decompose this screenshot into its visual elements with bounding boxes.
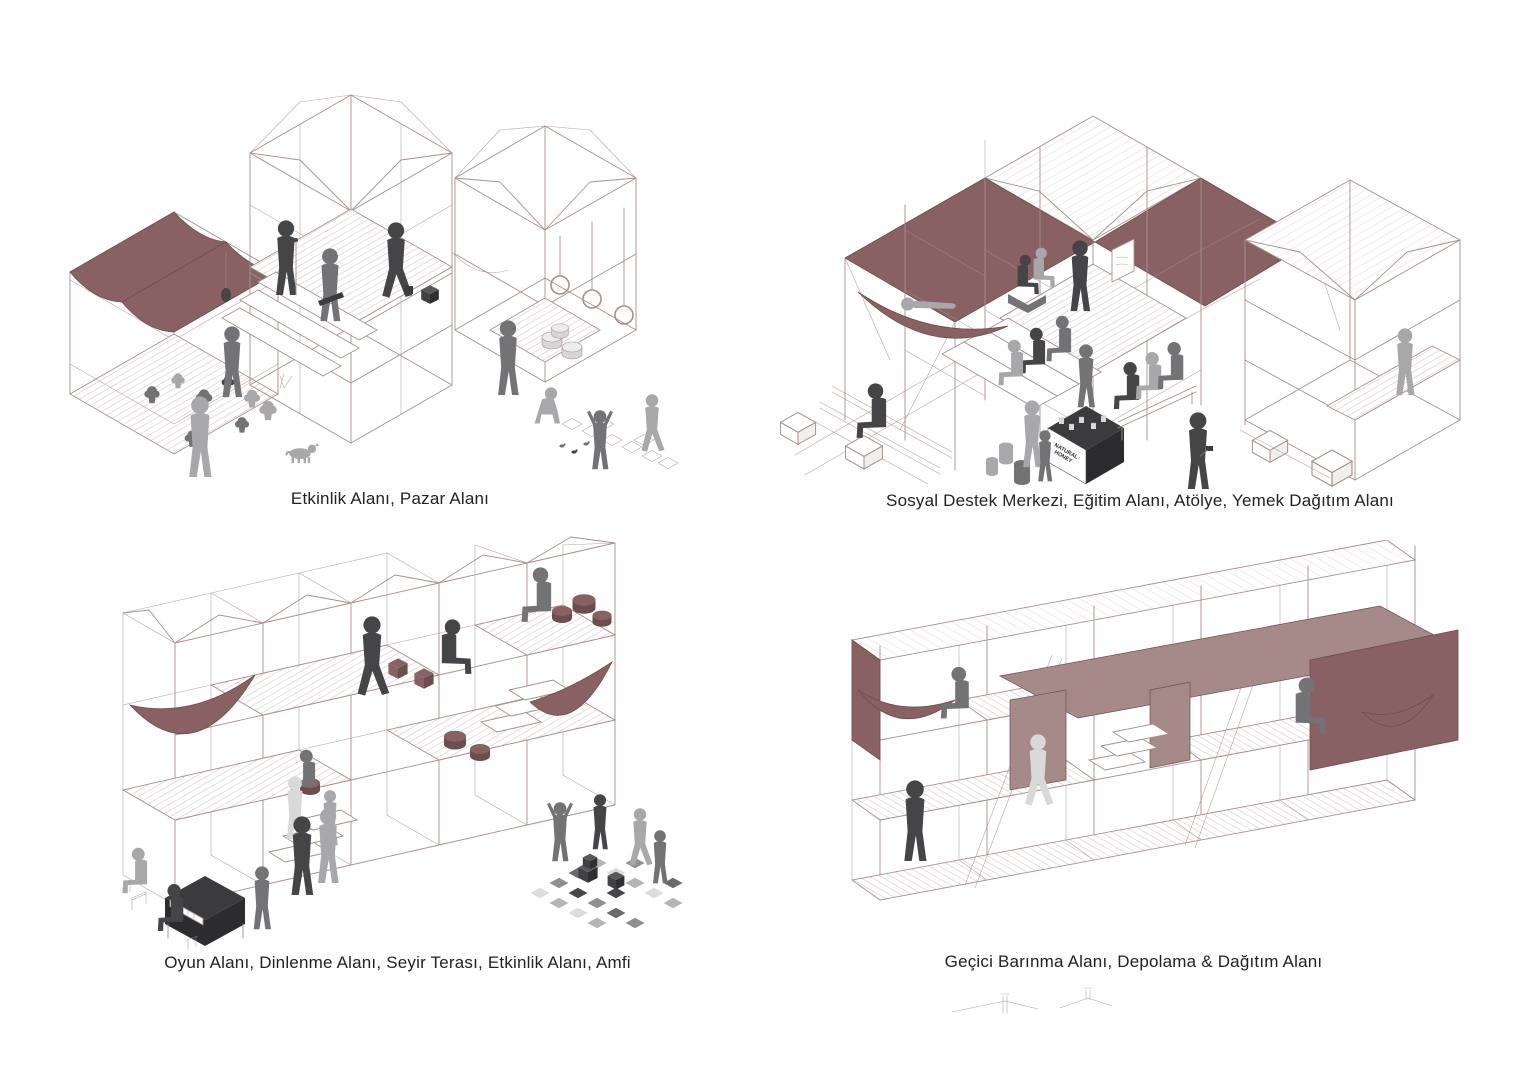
person-figure <box>1188 412 1209 489</box>
person-figure <box>904 780 926 861</box>
partition-panel <box>1150 682 1190 768</box>
bench <box>1312 450 1352 486</box>
rest-area <box>780 292 1008 484</box>
caption-social-support: Sosyal Destek Merkezi, Eğitim Alanı, Atö… <box>790 491 1490 511</box>
person-figure <box>630 808 653 865</box>
person-figure <box>318 808 339 883</box>
amp-box <box>421 285 439 304</box>
dog-figure <box>286 443 319 463</box>
caption-play-terrace: Oyun Alanı, Dinlenme Alanı, Seyir Terası… <box>105 953 690 973</box>
illustration-shelter-storage <box>850 540 1470 940</box>
person-figure <box>1114 362 1139 409</box>
person-figure <box>593 794 608 849</box>
piano-corner <box>123 808 339 949</box>
seated-group <box>1114 342 1213 489</box>
bench <box>1252 430 1287 462</box>
gym-rings <box>551 208 633 324</box>
cutoff-fragments <box>940 985 1140 1035</box>
person-figure <box>254 866 271 929</box>
person-figure <box>498 320 519 395</box>
hanging-pot <box>221 288 231 302</box>
play-mat-corner <box>531 794 683 928</box>
bench <box>780 412 815 444</box>
illustration-social-support: NATURAL HONEY <box>780 85 1470 495</box>
concept-sheet: NATURAL HONEY <box>0 0 1526 1079</box>
person-figure <box>1158 342 1183 389</box>
person-figure <box>189 396 211 477</box>
gym-module <box>455 126 636 382</box>
market-pergola <box>70 212 278 454</box>
person-figure <box>535 387 561 423</box>
illustration-event-market <box>60 88 730 488</box>
caption-shelter-storage: Geçici Barınma Alanı, Depolama & Dağıtım… <box>850 952 1417 972</box>
shelf-module <box>1240 180 1460 486</box>
person-figure <box>442 619 472 674</box>
person-figure <box>1023 400 1041 467</box>
striped-roof <box>1245 180 1460 300</box>
illustration-play-terrace <box>105 535 745 960</box>
person-figure <box>1136 352 1161 399</box>
person-figure <box>547 802 573 861</box>
briefcase <box>404 286 413 294</box>
person-figure <box>653 830 668 883</box>
bench <box>846 436 883 469</box>
person-figure <box>587 410 613 469</box>
person-figure <box>642 394 665 451</box>
person-figure <box>941 667 969 719</box>
barrels <box>986 443 1030 486</box>
caption-event-market: Etkinlik Alanı, Pazar Alanı <box>60 489 720 509</box>
camera <box>1206 446 1213 451</box>
